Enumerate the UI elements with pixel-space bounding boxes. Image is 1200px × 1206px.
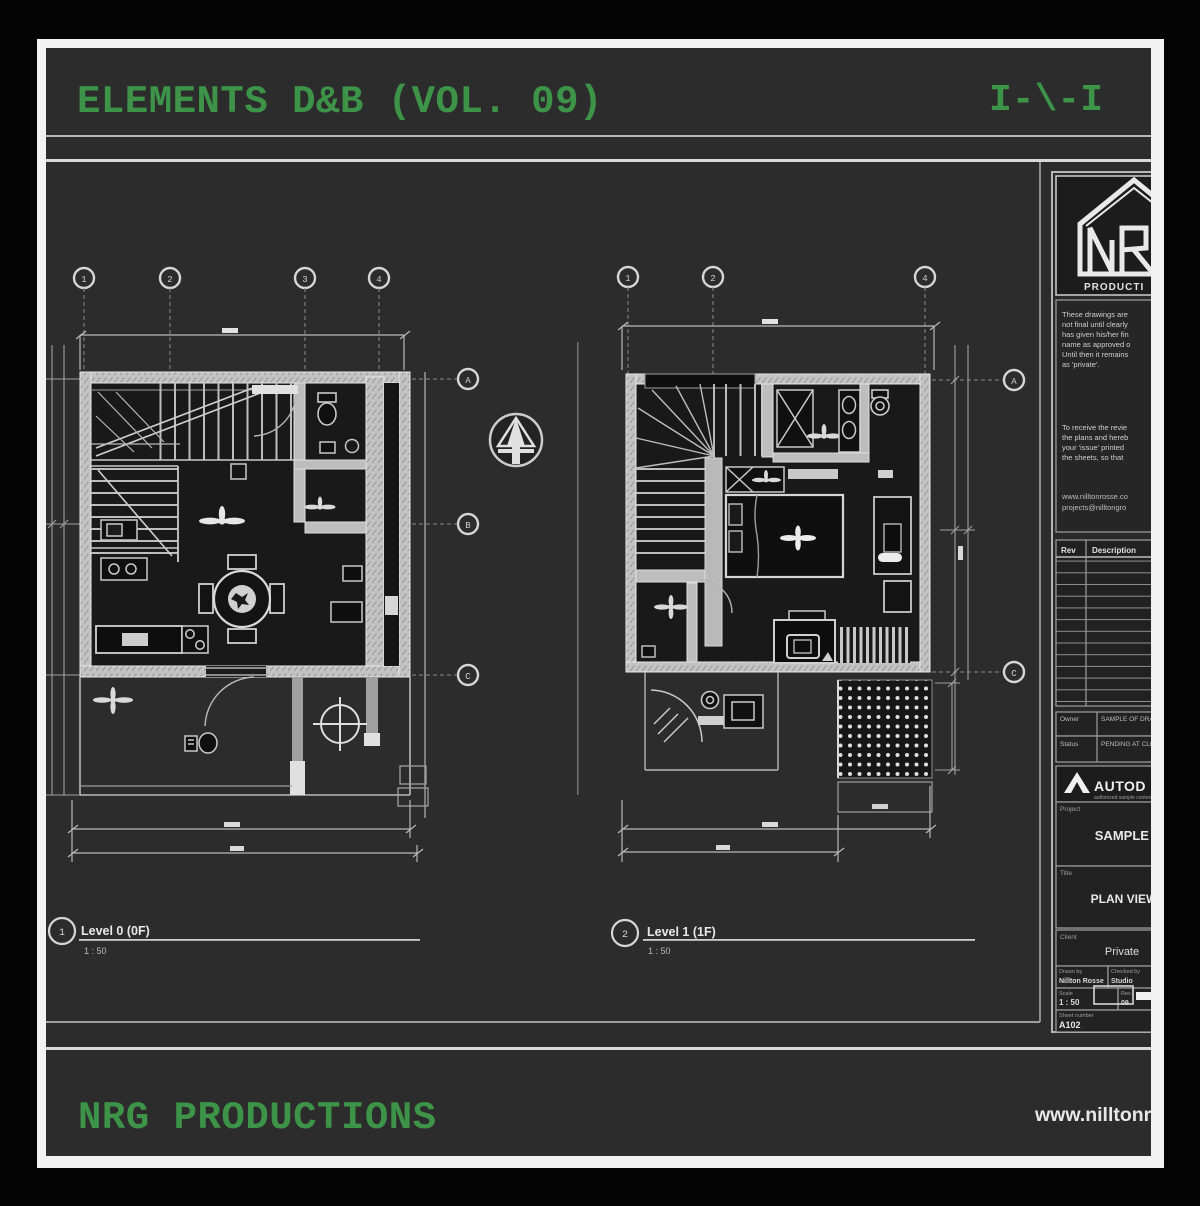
svg-text:2: 2 bbox=[622, 930, 628, 941]
svg-text:Client: Client bbox=[1060, 934, 1077, 941]
svg-text:A102: A102 bbox=[1059, 1020, 1081, 1030]
svg-text:not final until clearly: not final until clearly bbox=[1062, 320, 1128, 329]
svg-text:Nillton Rosse: Nillton Rosse bbox=[1059, 978, 1104, 985]
svg-text:www.nilltonrosse.co: www.nilltonrosse.co bbox=[1061, 492, 1128, 501]
svg-text:PENDING AT CLIE: PENDING AT CLIE bbox=[1101, 741, 1157, 748]
svg-text:as 'private'.: as 'private'. bbox=[1062, 360, 1099, 369]
svg-text:Owner: Owner bbox=[1060, 716, 1080, 723]
svg-text:the plans and hereb: the plans and hereb bbox=[1062, 433, 1128, 442]
svg-text:Level 0 (0F): Level 0 (0F) bbox=[81, 924, 150, 938]
svg-text:NRG PRODUCTIONS: NRG PRODUCTIONS bbox=[78, 1096, 437, 1140]
svg-text:Title: Title bbox=[1060, 870, 1072, 877]
svg-text:Rev.: Rev. bbox=[1121, 991, 1132, 997]
svg-text:name as approved o: name as approved o bbox=[1062, 340, 1130, 349]
svg-text:Sheet number: Sheet number bbox=[1059, 1013, 1094, 1019]
svg-text:Private: Private bbox=[1105, 946, 1139, 958]
svg-text:your 'issue' printed: your 'issue' printed bbox=[1062, 443, 1124, 452]
svg-text:Status: Status bbox=[1060, 741, 1079, 748]
svg-text:C: C bbox=[465, 672, 471, 682]
svg-text:Studio: Studio bbox=[1111, 978, 1133, 985]
svg-text:I-\-I: I-\-I bbox=[989, 79, 1103, 122]
svg-text:ELEMENTS D&B (VOL. 09): ELEMENTS D&B (VOL. 09) bbox=[77, 80, 603, 124]
svg-text:B: B bbox=[465, 521, 471, 531]
svg-text:Checked by: Checked by bbox=[1111, 969, 1140, 975]
svg-text:Until then it remains: Until then it remains bbox=[1062, 350, 1129, 359]
svg-text:projects@nilltongro: projects@nilltongro bbox=[1062, 503, 1126, 512]
svg-text:These drawings are: These drawings are bbox=[1062, 310, 1128, 319]
svg-text:3: 3 bbox=[302, 275, 307, 285]
svg-text:Description: Description bbox=[1092, 546, 1136, 555]
svg-text:1 : 50: 1 : 50 bbox=[648, 946, 671, 956]
svg-text:Project: Project bbox=[1060, 806, 1080, 813]
svg-text:the sheets, so that: the sheets, so that bbox=[1062, 453, 1124, 462]
svg-text:Rev: Rev bbox=[1061, 546, 1076, 555]
svg-text:1 : 50: 1 : 50 bbox=[84, 946, 107, 956]
svg-text:Scale: Scale bbox=[1059, 991, 1073, 997]
svg-text:Level 1 (1F): Level 1 (1F) bbox=[647, 925, 716, 939]
svg-text:To receive the revie: To receive the revie bbox=[1062, 423, 1127, 432]
svg-text:1 : 50: 1 : 50 bbox=[1059, 998, 1080, 1007]
svg-text:2: 2 bbox=[710, 274, 715, 284]
svg-text:A: A bbox=[465, 376, 471, 386]
svg-text:PLAN VIEW: PLAN VIEW bbox=[1091, 892, 1158, 906]
svg-text:2: 2 bbox=[167, 275, 172, 285]
svg-text:1: 1 bbox=[625, 274, 630, 284]
svg-text:authorized sample content: authorized sample content bbox=[1094, 795, 1153, 801]
svg-text:www.nilltonro: www.nilltonro bbox=[1034, 1104, 1163, 1126]
svg-text:PRODUCTI: PRODUCTI bbox=[1084, 282, 1144, 293]
svg-text:4: 4 bbox=[922, 274, 927, 284]
svg-text:C: C bbox=[1011, 669, 1017, 679]
svg-text:has given his/her fin: has given his/her fin bbox=[1062, 330, 1129, 339]
svg-text:Drawn by: Drawn by bbox=[1059, 969, 1082, 975]
svg-text:4: 4 bbox=[376, 275, 381, 285]
svg-text:AUTOD: AUTOD bbox=[1094, 778, 1146, 794]
svg-text:A: A bbox=[1011, 377, 1017, 387]
svg-text:1: 1 bbox=[59, 928, 65, 939]
svg-text:1: 1 bbox=[81, 275, 86, 285]
